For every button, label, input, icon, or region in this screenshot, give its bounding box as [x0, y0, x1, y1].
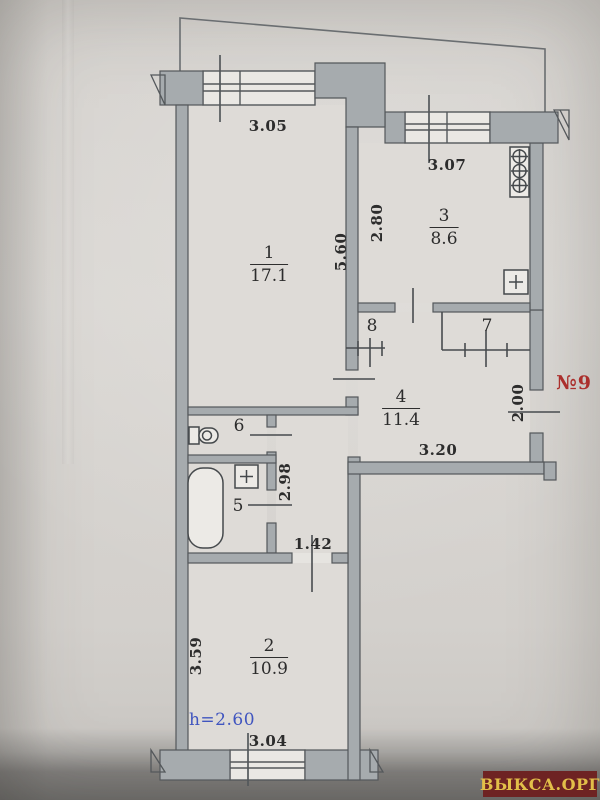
room-number: 4	[382, 388, 420, 409]
wall-kitchen-top-b	[490, 112, 558, 143]
wall-room2-right	[348, 457, 360, 780]
room-area: 11.4	[382, 409, 420, 430]
wall-wc-bath-divider	[188, 455, 276, 463]
dim-entry-opening: 2.00	[509, 384, 527, 423]
room-label-8: 8	[367, 316, 378, 336]
room-label-3: 3 8.6	[430, 207, 459, 249]
dim-kitchen-depth: 2.80	[368, 204, 386, 243]
room-area: 10.9	[250, 658, 288, 679]
wall-wc-right-a	[267, 415, 276, 427]
toilet-icon	[189, 427, 218, 444]
wall-right-mid	[530, 310, 543, 390]
bath-sink-icon	[235, 465, 258, 488]
dim-hall-width: 3.20	[419, 441, 458, 459]
apartment-number-label: №9	[556, 372, 592, 394]
room-label-7: 7	[482, 316, 493, 336]
wall-kitchen-bottom-a	[358, 303, 395, 312]
wall-entry-step	[544, 462, 556, 480]
wall-right-below-door	[530, 433, 543, 462]
room-number: 2	[250, 637, 288, 658]
dim-room2-door: 1.42	[294, 535, 333, 553]
dim-kitchen-width: 3.07	[428, 156, 467, 174]
scanned-floor-plan-photo: 3.05 3.07 2.80 5.60 3.20 2.00 2.98 1.42 …	[0, 0, 600, 800]
wall-hall-bottom	[348, 462, 544, 474]
ceiling-height-label: h=2.60	[189, 710, 255, 730]
wall-bottom-right	[305, 750, 378, 780]
room-number: 3	[430, 207, 459, 228]
wall-kitchen-top-a	[385, 112, 405, 143]
wall-top-left	[160, 71, 203, 105]
room-area: 8.6	[430, 228, 459, 249]
wall-kitchen-right	[530, 143, 543, 310]
dim-room2-depth: 3.59	[187, 637, 205, 676]
watermark-badge: ВЫКСА.ОРГ	[483, 771, 597, 797]
dim-room1-depth: 5.60	[332, 233, 350, 272]
room-label-5: 5	[233, 496, 244, 516]
dim-room1-width: 3.05	[249, 117, 288, 135]
wall-bath-right-c	[267, 523, 276, 553]
stove-icon	[510, 147, 529, 197]
dim-room2-width: 3.04	[249, 732, 288, 750]
wall-room2-top-b	[332, 553, 348, 563]
wall-kitchen-bottom-b	[433, 303, 530, 312]
wall-bottom-left	[160, 750, 230, 780]
room-label-4: 4 11.4	[382, 388, 420, 430]
room-label-6: 6	[234, 416, 245, 436]
room-area: 17.1	[250, 265, 288, 286]
wall-room1-bottom	[188, 407, 358, 415]
dim-bath-depth: 2.98	[276, 463, 294, 502]
wall-room2-top-a	[188, 553, 292, 563]
room-label-1: 1 17.1	[250, 244, 288, 286]
room-label-2: 2 10.9	[250, 637, 288, 679]
room-number: 1	[250, 244, 288, 265]
kitchen-sink-icon	[504, 270, 528, 294]
bathtub-icon	[188, 468, 223, 548]
